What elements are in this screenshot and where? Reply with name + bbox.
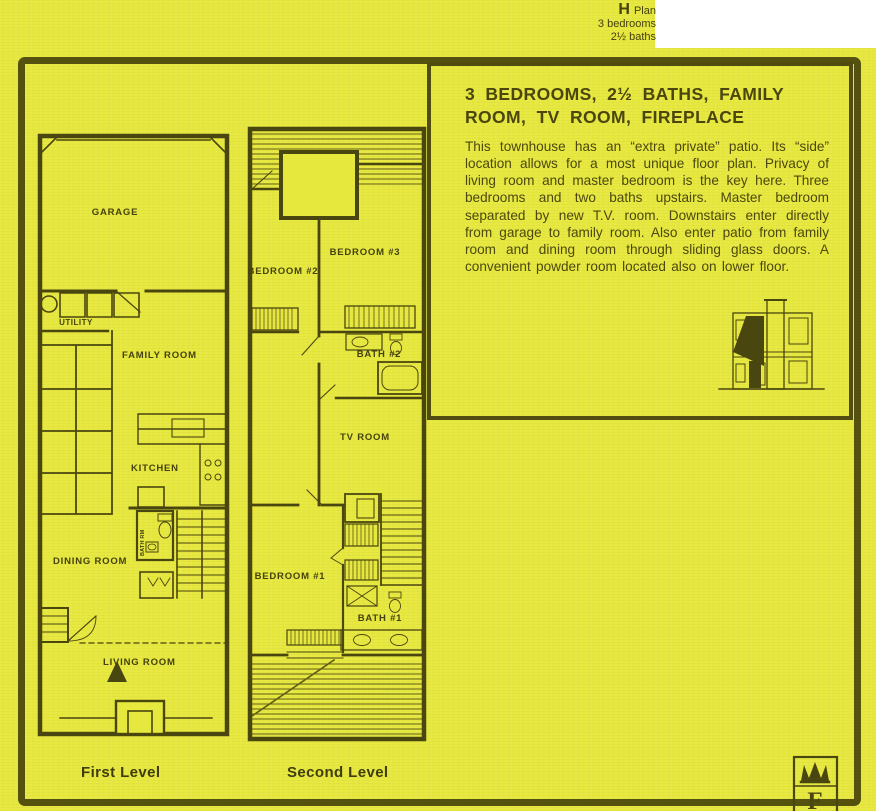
family-room-label: FAMILY ROOM xyxy=(122,350,197,361)
entry-closet xyxy=(40,608,68,642)
washer-dryer-icons xyxy=(60,293,139,317)
first-level-plan: GARAGE UTILITY FAMILY ROOM KITCHEN DININ… xyxy=(40,136,227,781)
stair-bulkhead xyxy=(281,152,357,218)
utility-label: UTILITY xyxy=(59,318,93,327)
builder-logo: F xyxy=(794,757,837,811)
bedroom1-wardrobes xyxy=(345,524,378,580)
fireplace xyxy=(116,701,164,734)
crown-icon xyxy=(801,762,829,781)
second-level-caption: Second Level xyxy=(287,764,389,781)
powder-room-label: BATH RM xyxy=(140,529,146,556)
tv-room-label: TV ROOM xyxy=(340,432,390,443)
house-elevation-icon xyxy=(719,300,824,389)
hall-closet xyxy=(140,572,173,598)
bedroom2-closet xyxy=(252,308,298,330)
bedroom3-closet xyxy=(345,306,415,328)
bath1-label: BATH #1 xyxy=(358,613,403,624)
floor-plan-drawing: GARAGE UTILITY FAMILY ROOM KITCHEN DININ… xyxy=(0,0,876,811)
chase-box xyxy=(345,494,379,522)
logo-letter: F xyxy=(807,788,822,811)
first-level-caption: First Level xyxy=(81,764,160,781)
stairs-second-level xyxy=(381,494,424,585)
dining-room-label: DINING ROOM xyxy=(53,556,127,567)
second-level-plan: BEDROOM #2 BEDROOM #3 BATH #2 TV ROOM BE… xyxy=(248,129,424,781)
linen-closet xyxy=(347,586,377,606)
kitchen-label: KITCHEN xyxy=(131,463,179,474)
living-room-label: LIVING ROOM xyxy=(103,657,176,668)
deck-hatch xyxy=(252,660,422,734)
water-heater-icon xyxy=(41,296,57,312)
stairs-first-level xyxy=(177,511,227,598)
bath2-label: BATH #2 xyxy=(357,349,402,360)
bath2-fixtures xyxy=(346,334,422,394)
bedroom3-label: BEDROOM #3 xyxy=(330,247,401,258)
entry-door-swing xyxy=(68,616,96,641)
kitchen-counter xyxy=(138,414,227,507)
bedroom2-label: BEDROOM #2 xyxy=(248,266,319,277)
patio-paving xyxy=(40,331,112,514)
garage-label: GARAGE xyxy=(92,207,139,218)
bedroom1-window-band xyxy=(287,630,343,645)
bedroom1-label: BEDROOM #1 xyxy=(255,571,326,582)
